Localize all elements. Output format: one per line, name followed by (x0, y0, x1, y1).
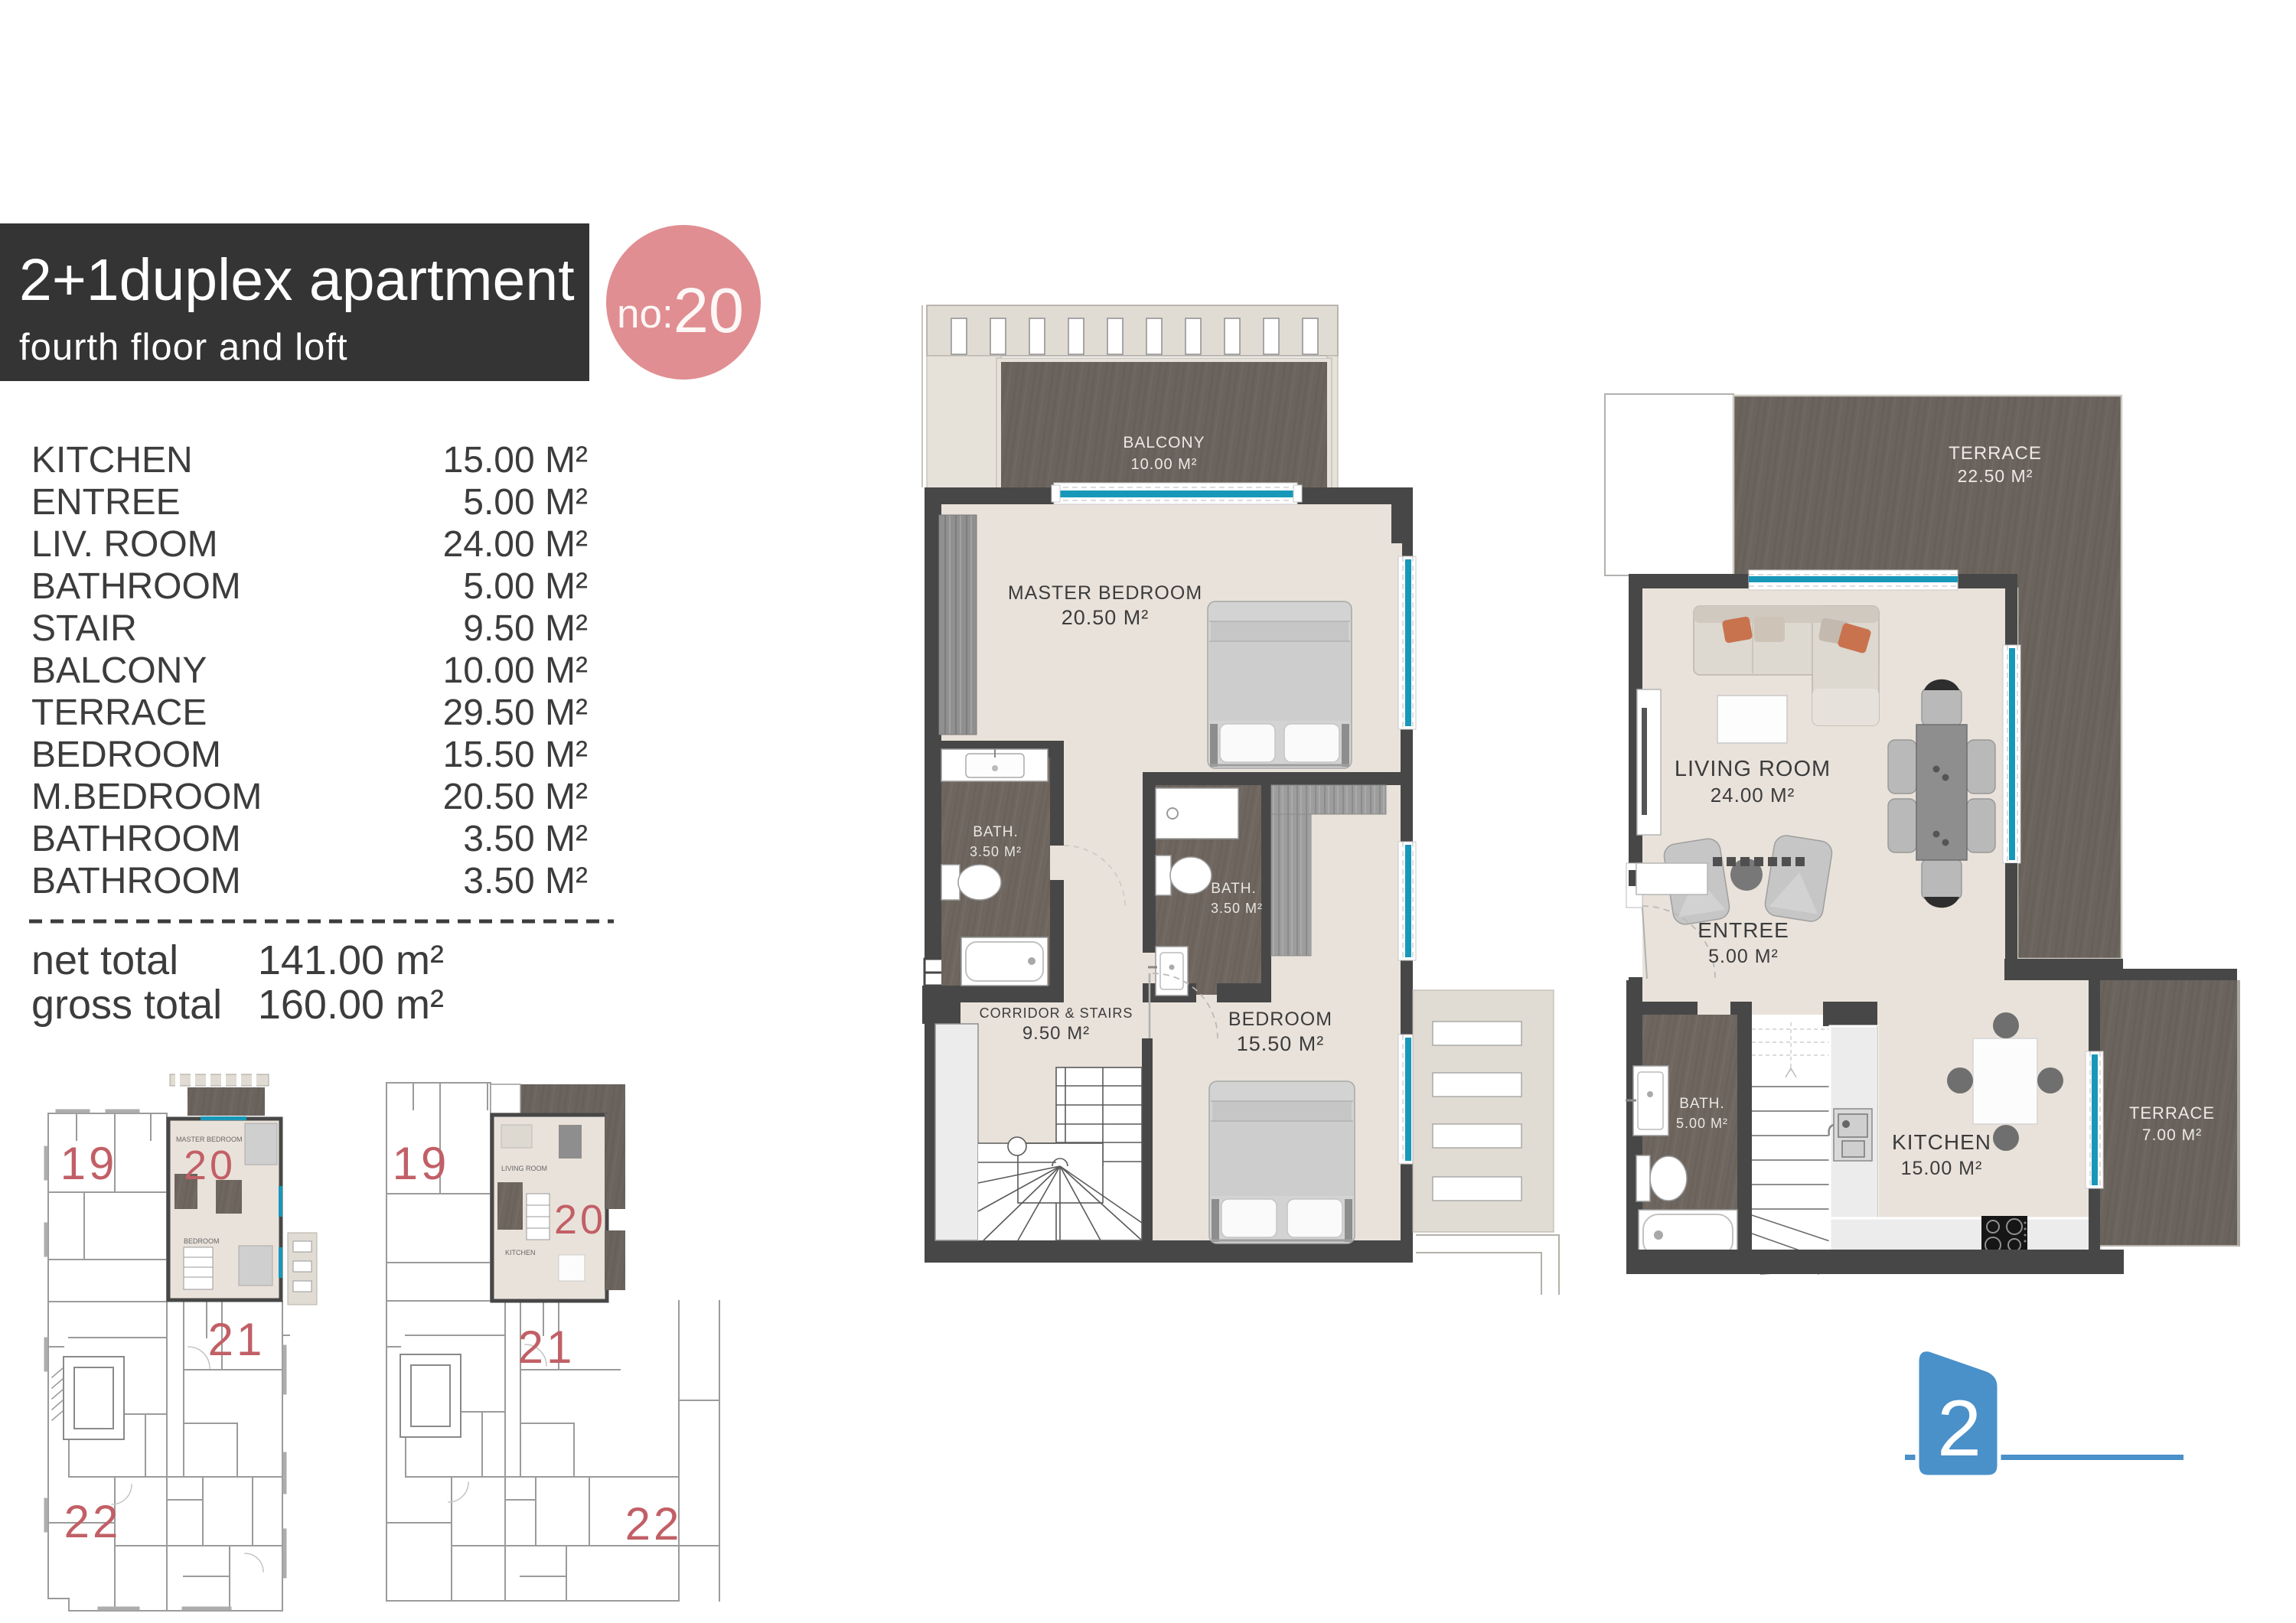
svg-text:9.50 M²: 9.50 M² (463, 608, 588, 649)
svg-text:BATHROOM: BATHROOM (31, 566, 241, 607)
svg-text:KITCHEN: KITCHEN (505, 1249, 536, 1256)
svg-text:5.00 M²: 5.00 M² (1676, 1116, 1728, 1131)
svg-text:ENTREE: ENTREE (1698, 918, 1789, 942)
svg-text:2+1duplex apartment: 2+1duplex apartment (19, 247, 575, 313)
svg-text:21: 21 (208, 1314, 266, 1365)
svg-text:BATH.: BATH. (1211, 881, 1257, 897)
svg-text:29.50 M²: 29.50 M² (443, 693, 588, 733)
svg-text:TERRACE: TERRACE (31, 693, 207, 733)
svg-text:CORRIDOR & STAIRS: CORRIDOR & STAIRS (980, 1005, 1133, 1021)
svg-text:BALCONY: BALCONY (1123, 434, 1205, 451)
svg-text:3.50 M²: 3.50 M² (463, 819, 588, 859)
svg-text:BATH.: BATH. (1679, 1096, 1725, 1112)
svg-text:19: 19 (393, 1138, 450, 1189)
svg-text:LIVING ROOM: LIVING ROOM (501, 1165, 547, 1172)
svg-text:7.00 M²: 7.00 M² (2142, 1126, 2202, 1144)
svg-text:3.50 M²: 3.50 M² (1211, 901, 1263, 916)
svg-text:20.50 M²: 20.50 M² (443, 777, 588, 817)
svg-text:21: 21 (518, 1322, 576, 1373)
svg-text:141.00 m²: 141.00 m² (258, 937, 444, 983)
svg-text:15.00 M²: 15.00 M² (443, 440, 588, 481)
svg-text:BEDROOM: BEDROOM (184, 1237, 220, 1245)
svg-text:20: 20 (554, 1197, 606, 1243)
svg-text:10.00 M²: 10.00 M² (1131, 456, 1198, 473)
svg-text:BEDROOM: BEDROOM (1228, 1009, 1332, 1030)
svg-text:2: 2 (1937, 1384, 1981, 1473)
svg-text:BATH.: BATH. (973, 824, 1019, 840)
svg-text:TERRACE: TERRACE (2129, 1103, 2215, 1123)
svg-text:net total: net total (31, 937, 178, 983)
svg-text:BEDROOM: BEDROOM (31, 735, 221, 775)
svg-text:BALCONY: BALCONY (31, 650, 207, 691)
svg-text:TERRACE: TERRACE (1949, 443, 2042, 464)
svg-text:5.00 M²: 5.00 M² (463, 566, 588, 607)
svg-text:24.00 M²: 24.00 M² (1711, 784, 1795, 807)
svg-text:3.50 M²: 3.50 M² (970, 844, 1022, 859)
svg-text:M.BEDROOM: M.BEDROOM (31, 777, 262, 817)
svg-text:fourth floor and loft: fourth floor and loft (19, 327, 348, 368)
svg-text:3.50 M²: 3.50 M² (463, 861, 588, 901)
svg-text:10.00 M²: 10.00 M² (443, 650, 588, 691)
svg-text:BATHROOM: BATHROOM (31, 819, 241, 859)
svg-text:20: 20 (184, 1142, 236, 1188)
svg-text:5.00 M²: 5.00 M² (1708, 946, 1779, 967)
svg-text:22: 22 (64, 1496, 122, 1547)
svg-text:KITCHEN: KITCHEN (31, 440, 193, 481)
svg-text:KITCHEN: KITCHEN (1892, 1130, 1991, 1154)
svg-text:15.50 M²: 15.50 M² (1237, 1032, 1325, 1055)
svg-text:gross total: gross total (31, 982, 222, 1028)
svg-text:20.50 M²: 20.50 M² (1062, 606, 1150, 629)
svg-text:LIV. ROOM: LIV. ROOM (31, 524, 218, 565)
svg-text:5.00 M²: 5.00 M² (463, 482, 588, 523)
svg-text:160.00 m²: 160.00 m² (258, 982, 444, 1028)
svg-text:9.50 M²: 9.50 M² (1022, 1023, 1090, 1044)
svg-text:22.50 M²: 22.50 M² (1958, 466, 2033, 486)
svg-text:BATHROOM: BATHROOM (31, 861, 241, 901)
svg-text:MASTER BEDROOM: MASTER BEDROOM (1008, 582, 1202, 604)
svg-text:LIVING ROOM: LIVING ROOM (1675, 757, 1831, 781)
svg-text:22: 22 (625, 1498, 683, 1550)
svg-text:15.00 M²: 15.00 M² (1901, 1158, 1983, 1179)
svg-text:15.50 M²: 15.50 M² (443, 735, 588, 775)
svg-text:STAIR: STAIR (31, 608, 137, 649)
svg-text:ENTREE: ENTREE (31, 482, 181, 523)
svg-text:19: 19 (60, 1138, 118, 1189)
svg-text:24.00 M²: 24.00 M² (443, 524, 588, 565)
